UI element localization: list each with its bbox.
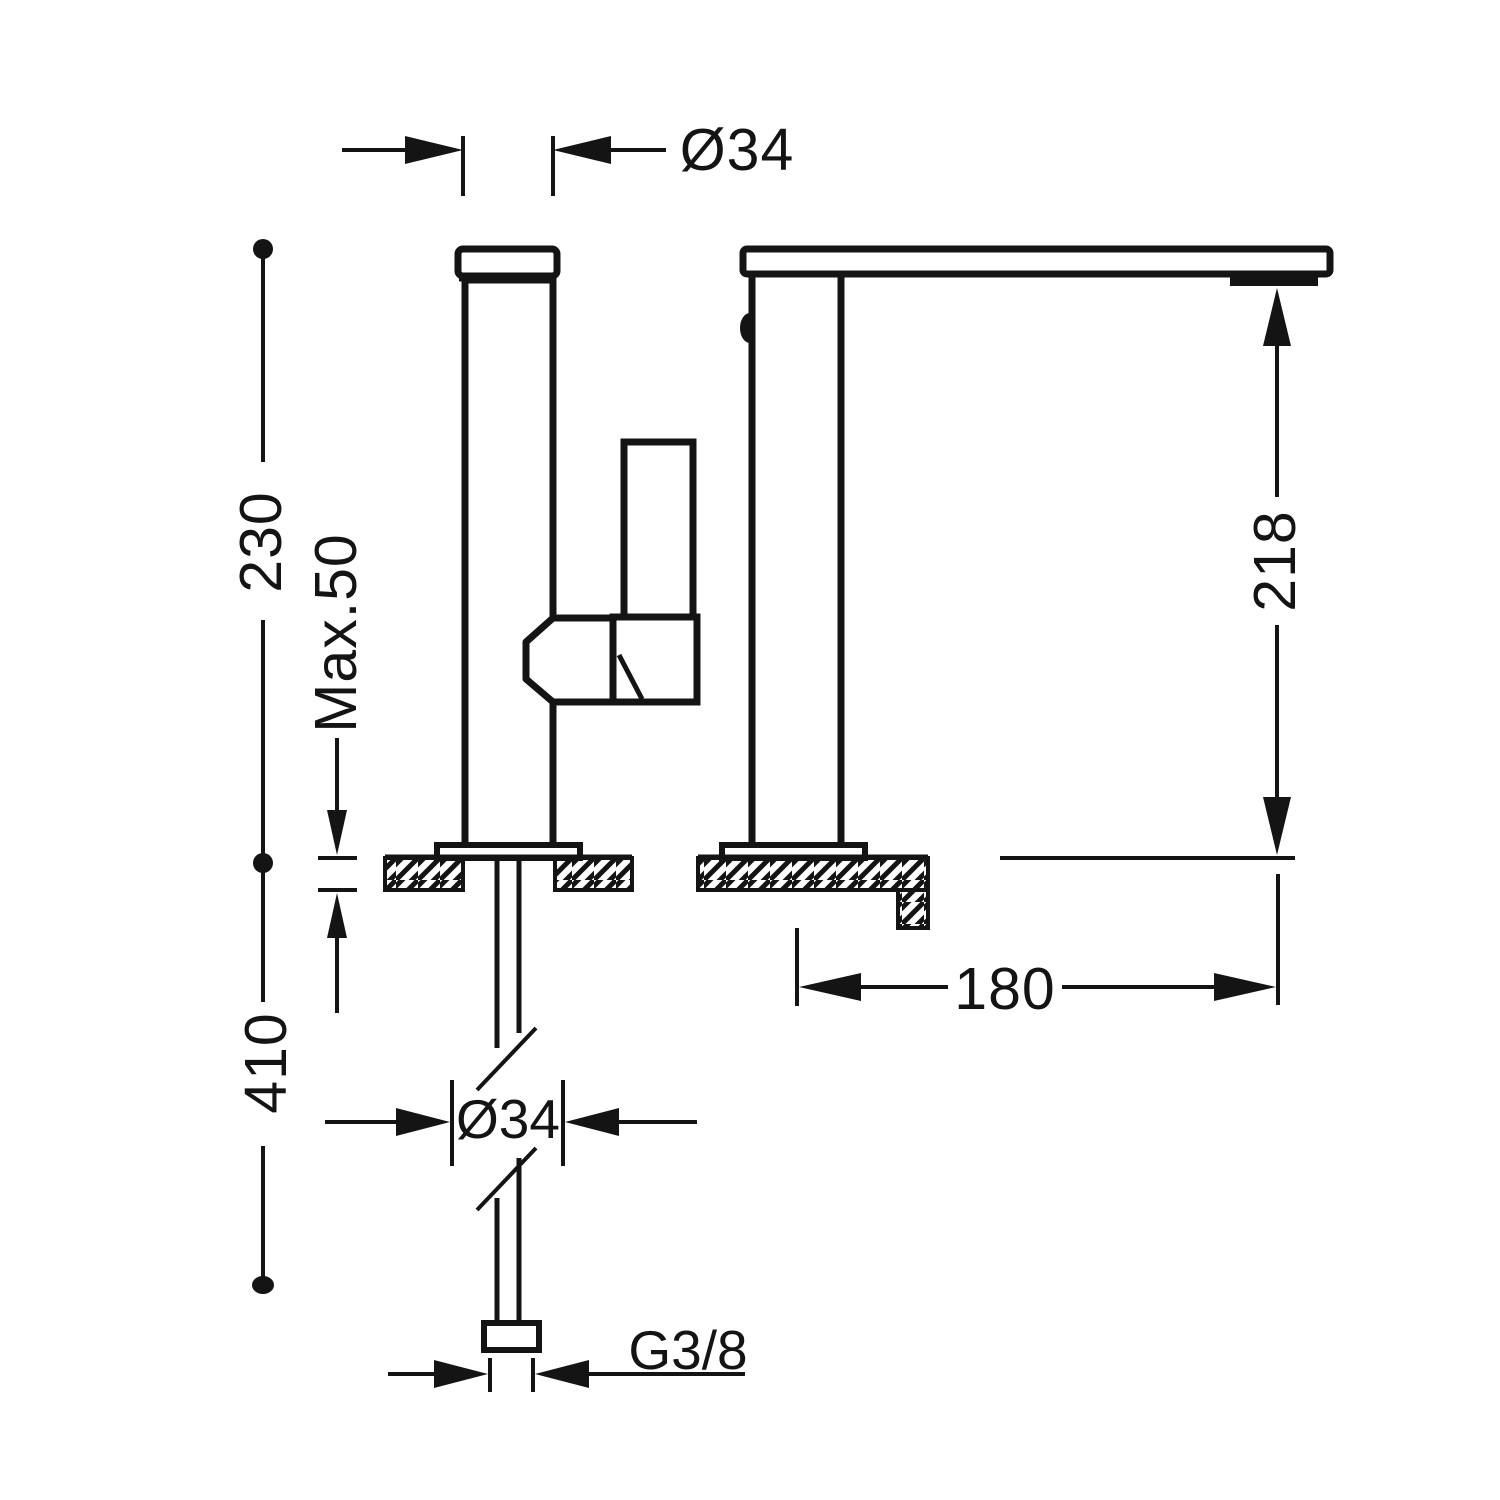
dim-label-length-below-deck: 410 [233, 1012, 299, 1113]
dim-dot-bottom [252, 1276, 274, 1294]
dim-label-top-diameter: Ø34 [680, 117, 795, 183]
faucet-dimension-diagram: Ø34 230 410 Max.50 [0, 0, 1500, 1500]
arrowhead-left-icon [535, 1360, 589, 1388]
dim-supply-connection: G3/8 [388, 1319, 748, 1392]
countertop-hatch-band [698, 858, 928, 890]
dim-max-deck-thickness: Max.50 [303, 533, 369, 1013]
faucet-body-column [752, 274, 841, 847]
countertop-hatch-right [555, 858, 632, 890]
spout-outlet [1230, 272, 1318, 286]
arrowhead-right-icon [405, 136, 463, 164]
countertop-left [385, 857, 632, 890]
dim-label-supply-connection: G3/8 [628, 1319, 747, 1381]
dim-label-spout-clearance: 218 [1242, 510, 1308, 611]
dim-label-spout-reach: 180 [954, 956, 1055, 1022]
faucet-front-view [722, 249, 1330, 858]
dim-dot-middle [253, 853, 273, 873]
dim-spout-reach: 180 [797, 928, 1276, 1022]
handle-lever [624, 442, 693, 622]
dim-chain-left: 230 410 [228, 239, 299, 1294]
arrowhead-right-icon [434, 1360, 488, 1388]
hose-break-slash [477, 1028, 536, 1090]
handle-joint-nose [526, 618, 613, 702]
hose-break-slash [477, 1148, 536, 1210]
countertop-edge-step [898, 890, 928, 928]
dim-label-max-thickness: Max.50 [303, 533, 369, 732]
arrowhead-up-icon [327, 893, 347, 938]
handle-joint-block [613, 617, 697, 702]
arrowhead-up-icon [1263, 288, 1291, 346]
dim-top-diameter: Ø34 [342, 117, 794, 196]
dim-label-height-above-deck: 230 [228, 491, 294, 592]
spout-head-cap [458, 249, 557, 276]
arrowhead-right-icon [1214, 973, 1276, 1001]
arrowhead-right-icon [396, 1108, 450, 1136]
arrowhead-left-icon [565, 1108, 619, 1136]
dim-spout-clearance: 218 [1000, 288, 1308, 1005]
faucet-body-column [465, 280, 553, 847]
arrowhead-down-icon [327, 810, 347, 855]
faucet-side-view [437, 249, 697, 858]
arrowhead-down-icon [1263, 797, 1291, 855]
arrowhead-left-icon [553, 136, 611, 164]
countertop-hatch-left [385, 858, 463, 890]
g38-fitting [484, 1323, 539, 1350]
dim-label-base-diameter: Ø34 [456, 1088, 560, 1150]
countertop-right [698, 857, 928, 928]
spout-bar [743, 249, 1330, 274]
dim-base-diameter: Ø34 [325, 1080, 697, 1166]
technical-drawing-page: Ø34 230 410 Max.50 [0, 0, 1500, 1500]
arrowhead-left-icon [799, 973, 861, 1001]
